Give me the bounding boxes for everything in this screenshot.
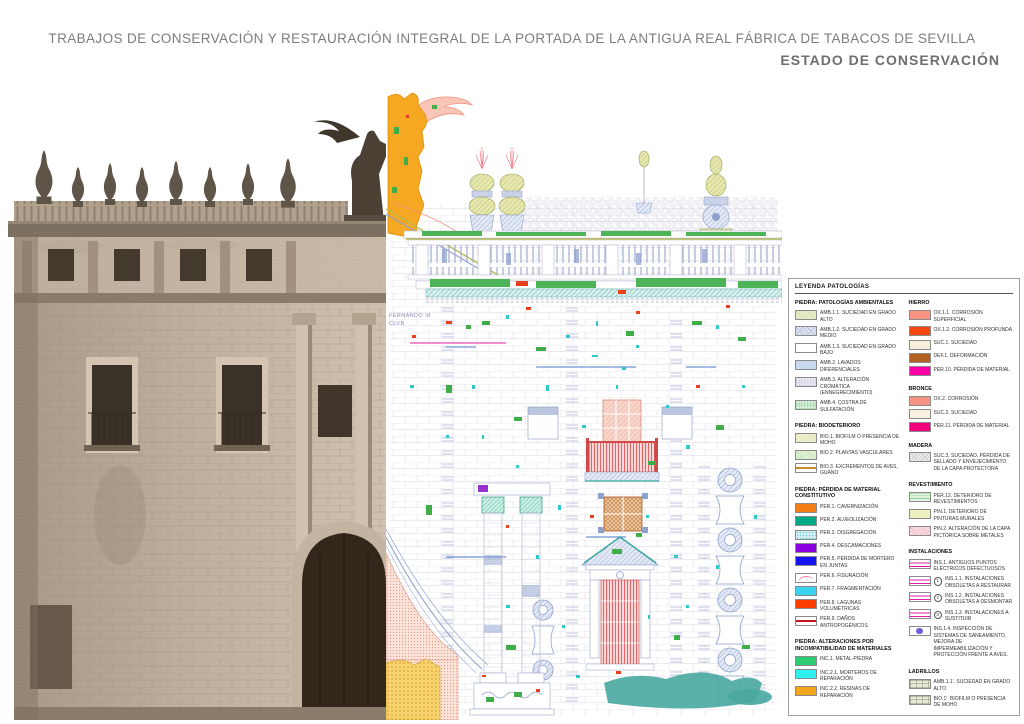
legend-item: AMB.1.1. SUCIEDAD EN GRADO ALTO bbox=[795, 310, 900, 324]
legend-item-label: BIO.3. EXCREMENTOS DE AVES, GUANO bbox=[820, 463, 900, 477]
legend-section: PIEDRA: ALTERACIONES POR INCOMPATIBILIDA… bbox=[795, 636, 900, 702]
legend-item: AMB.1.1'. SUCIEDAD EN GRADO ALTO bbox=[909, 679, 1014, 693]
legend-item-label: INS.1. ANTIGUOS PUNTOS ELÉCTRICOS DEFECT… bbox=[934, 559, 1014, 573]
legend-section-title: PIEDRA: ALTERACIONES POR INCOMPATIBILIDA… bbox=[795, 639, 900, 653]
legend-item: PER.4. DESCAMACIONES bbox=[795, 543, 900, 553]
legend-item: AMB.3. ALTERACIÓN CROMÁTICA (ENNEGRECIMI… bbox=[795, 377, 900, 397]
legend-item: AMB.1.2. SUCIEDAD EN GRADO MEDIO bbox=[795, 326, 900, 340]
upper-cornice bbox=[404, 231, 782, 239]
legend-item: OX.1.2. CORROSIÓN PROFUNDA bbox=[909, 326, 1014, 336]
legend-section-title: BRONCE bbox=[909, 386, 1014, 393]
legend-item: PER.6. FISURACIÓN bbox=[795, 573, 900, 583]
legend-panel: LEYENDA PATOLOGÍAS PIEDRA: PATOLOGÍAS AM… bbox=[788, 278, 1020, 716]
legend-item: 3INS.1.3. INSTALACIONES A SUSTITUIR bbox=[909, 609, 1014, 623]
legend-item: OX.2. CORROSIÓN bbox=[909, 396, 1014, 406]
legend-swatch bbox=[795, 616, 817, 626]
small-window-left bbox=[528, 407, 558, 439]
legend-item-label: SUC.2. SUCIEDAD bbox=[934, 409, 977, 416]
photo-balcony-window-right bbox=[214, 357, 270, 453]
photo-attic bbox=[14, 237, 386, 293]
legend-item: BIO.3. EXCREMENTOS DE AVES, GUANO bbox=[795, 463, 900, 477]
legend-item-label: PER.10. PÉRDIDA DE MATERIAL bbox=[934, 366, 1010, 373]
drawing-balustrade bbox=[408, 240, 782, 279]
legend-item-label: PER.5. PÉRDIDA DE MORTERO EN JUNTAS bbox=[820, 556, 900, 570]
legend-swatch bbox=[795, 343, 817, 353]
frieze-inscription-line1: FERNANDO VI bbox=[389, 313, 431, 319]
legend-item-label: BIO.1. BIOFILM O PRESENCIA DE MOHO bbox=[820, 433, 900, 447]
legend-item-label: INC.1. METAL-PIEDRA bbox=[820, 656, 872, 663]
legend-item: SUC.3. SUCIEDAD, PÉRDIDA DE SELLADO Y EN… bbox=[909, 452, 1014, 472]
legend-item: BIO.1. BIOFILM O PRESENCIA DE MOHO bbox=[795, 433, 900, 447]
legend-section: INSTALACIONESINS.1. ANTIGUOS PUNTOS ELÉC… bbox=[909, 546, 1014, 662]
pathology-drawing-art: FERNANDO VI CLVB bbox=[386, 85, 782, 720]
legend-item: PER.5. PÉRDIDA DE MORTERO EN JUNTAS bbox=[795, 556, 900, 570]
legend-item: PER.11. PÉRDIDA DE MATERIAL bbox=[909, 422, 1014, 432]
legend-item: PER.9. DAÑOS ANTROPOGÉNICOS bbox=[795, 616, 900, 630]
legend-swatch bbox=[909, 509, 931, 519]
legend-swatch bbox=[909, 576, 931, 586]
legend-swatch bbox=[909, 609, 931, 619]
legend-swatch bbox=[795, 326, 817, 336]
legend-item: PER.3. DISGREGACIÓN bbox=[795, 530, 900, 540]
legend-item: SUC.1. SUCIEDAD bbox=[909, 340, 1014, 350]
legend-item-label: PER.2. ALVEOLIZACIÓN bbox=[820, 516, 876, 523]
legend-swatch bbox=[795, 450, 817, 460]
page-subtitle: ESTADO DE CONSERVACIÓN bbox=[780, 52, 1000, 68]
damp-zone bbox=[728, 689, 772, 705]
legend-item: PER.7. FRAGMENTACIÓN bbox=[795, 586, 900, 596]
legend-section-title: PIEDRA: PÉRDIDA DE MATERIAL CONSTITUTIVO bbox=[795, 487, 900, 501]
legend-swatch bbox=[909, 695, 931, 705]
legend-section: BRONCEOX.2. CORROSIÓNSUC.2. SUCIEDADPER.… bbox=[909, 383, 1014, 435]
legend-item-label: PIN.1. DETERIORO DE PINTURAS MURALES bbox=[934, 509, 1014, 523]
legend-item-label: DEF.1. DEFORMACIÓN bbox=[934, 353, 988, 360]
legend-swatch bbox=[795, 543, 817, 553]
legend-section: MADERASUC.3. SUCIEDAD, PÉRDIDA DE SELLAD… bbox=[909, 440, 1014, 476]
legend-swatch bbox=[795, 433, 817, 443]
legend-section: PIEDRA: PATOLOGÍAS AMBIENTALESAMB.1.1. S… bbox=[795, 297, 900, 416]
legend-item-label: PER.7. FRAGMENTACIÓN bbox=[820, 586, 881, 593]
legend-swatch bbox=[909, 626, 931, 636]
legend-swatch bbox=[909, 592, 931, 602]
legend-item-badge: 3 bbox=[934, 611, 943, 620]
legend-item-label: BIO.2. PLANTAS VASCULARES bbox=[820, 450, 893, 457]
legend-column: HIERROOX.1.1. CORROSIÓN SUPERFICIALOX.1.… bbox=[909, 297, 1014, 716]
legend-section-title: REVESTIMIENTO bbox=[909, 482, 1014, 489]
legend-item-label: PER.3. DISGREGACIÓN bbox=[820, 530, 876, 537]
main-cornice bbox=[416, 278, 782, 303]
legend-item-label: BIO.1'. BIOFILM O PRESENCIA DE MOHO bbox=[934, 695, 1014, 709]
legend-item-badge: 1 bbox=[934, 577, 943, 586]
legend-item: 1INS.1.1. INSTALACIONES OBSOLETAS A REST… bbox=[909, 576, 1014, 590]
legend-item: PER.2. ALVEOLIZACIÓN bbox=[795, 516, 900, 526]
pedimented-window bbox=[582, 537, 658, 670]
legend-swatch bbox=[795, 516, 817, 526]
legend-column: PIEDRA: PATOLOGÍAS AMBIENTALESAMB.1.1. S… bbox=[795, 297, 900, 716]
legend-item-label: AMB.4. COSTRA DE SULFATACIÓN bbox=[820, 400, 900, 414]
legend-swatch bbox=[795, 669, 817, 679]
small-window-right bbox=[662, 407, 692, 439]
frieze-inscription-line2: CLVB bbox=[389, 321, 405, 327]
legend-item: 2INS.1.2. INSTALACIONES OBSOLETAS A DESM… bbox=[909, 592, 1014, 606]
legend-swatch bbox=[795, 656, 817, 666]
legend-item-label: AMB.1.1. SUCIEDAD EN GRADO ALTO bbox=[820, 310, 900, 324]
legend-item-label: PER.8. LAGUNAS VOLUMÉTRICAS bbox=[820, 599, 900, 613]
page: TRABAJOS DE CONSERVACIÓN Y RESTAURACIÓN … bbox=[0, 0, 1024, 724]
legend-item-label: INC.2.1. MORTEROS DE REPARACIÓN bbox=[820, 669, 900, 683]
facade-photo-art bbox=[0, 85, 386, 720]
legend-swatch bbox=[795, 686, 817, 696]
legend-item-label: SUC.1. SUCIEDAD bbox=[934, 340, 977, 347]
legend-item-label: AMB.1.1'. SUCIEDAD EN GRADO ALTO bbox=[934, 679, 1014, 693]
legend-swatch bbox=[909, 396, 931, 406]
legend-section-title: INSTALACIONES bbox=[909, 549, 1014, 556]
legend-section: PIEDRA: PÉRDIDA DE MATERIAL CONSTITUTIVO… bbox=[795, 484, 900, 633]
legend-section: LADRILLOSAMB.1.1'. SUCIEDAD EN GRADO ALT… bbox=[909, 666, 1014, 712]
legend-item-label: AMB.1.3. SUCIEDAD EN GRADO BAJO bbox=[820, 343, 900, 357]
legend-swatch bbox=[795, 310, 817, 320]
legend-item-label: PIN.2. ALTERACIÓN DE LA CAPA PICTÓRICA S… bbox=[934, 526, 1014, 540]
legend-item-label: PER.4. DESCAMACIONES bbox=[820, 543, 881, 550]
legend-item: INS.1.4. INSPECCIÓN DE SISTEMAS DE SANEA… bbox=[909, 626, 1014, 659]
legend-item: DEF.1. DEFORMACIÓN bbox=[909, 353, 1014, 363]
legend-item-label: INC.2.2. RESINAS DE REPARACIÓN bbox=[820, 686, 900, 700]
legend-item-label: PER.12. DETERIORO DE REVESTIMIENTOS bbox=[934, 492, 1014, 506]
legend-item: AMB.2. LAVADOS DIFERENCIALES bbox=[795, 360, 900, 374]
legend-item-label: AMB.3. ALTERACIÓN CROMÁTICA (ENNEGRECIMI… bbox=[820, 377, 900, 397]
legend-item-label: OX.1.2. CORROSIÓN PROFUNDA bbox=[934, 326, 1013, 333]
legend-item: PER.10. PÉRDIDA DE MATERIAL bbox=[909, 366, 1014, 376]
legend-item-badge: 2 bbox=[934, 594, 943, 603]
legend-swatch bbox=[909, 422, 931, 432]
legend-item-label: INS.1.1. INSTALACIONES OBSOLETAS A RESTA… bbox=[945, 576, 1013, 590]
legend-swatch bbox=[795, 599, 817, 609]
legend-item: PER.12. DETERIORO DE REVESTIMIENTOS bbox=[909, 492, 1014, 506]
legend-swatch bbox=[909, 492, 931, 502]
legend-swatch bbox=[909, 326, 931, 336]
legend-swatch bbox=[909, 452, 931, 462]
legend-item-label: OX.1.1. CORROSIÓN SUPERFICIAL bbox=[934, 310, 1014, 324]
legend-swatch bbox=[795, 573, 817, 583]
legend-swatch bbox=[909, 310, 931, 320]
legend-section-title: MADERA bbox=[909, 443, 1014, 450]
legend-swatch bbox=[795, 556, 817, 566]
legend-item-label: SUC.3. SUCIEDAD, PÉRDIDA DE SELLADO Y EN… bbox=[934, 452, 1014, 472]
legend-section: PIEDRA: BIODETERIOROBIO.1. BIOFILM O PRE… bbox=[795, 420, 900, 479]
legend-swatch bbox=[795, 586, 817, 596]
legend-item-label: PER.9. DAÑOS ANTROPOGÉNICOS bbox=[820, 616, 900, 630]
legend-item: INC.1. METAL-PIEDRA bbox=[795, 656, 900, 666]
legend-item: OX.1.1. CORROSIÓN SUPERFICIAL bbox=[909, 310, 1014, 324]
legend-item-label: AMB.1.2. SUCIEDAD EN GRADO MEDIO bbox=[820, 326, 900, 340]
legend-columns: PIEDRA: PATOLOGÍAS AMBIENTALESAMB.1.1. S… bbox=[795, 297, 1013, 716]
legend-swatch bbox=[795, 400, 817, 410]
legend-item: AMB.1.3. SUCIEDAD EN GRADO BAJO bbox=[795, 343, 900, 357]
legend-item: SUC.2. SUCIEDAD bbox=[909, 409, 1014, 419]
legend-title: LEYENDA PATOLOGÍAS bbox=[795, 284, 1013, 294]
legend-swatch bbox=[909, 559, 931, 569]
legend-swatch bbox=[909, 353, 931, 363]
legend-item: PER.8. LAGUNAS VOLUMÉTRICAS bbox=[795, 599, 900, 613]
legend-section-title: HIERRO bbox=[909, 300, 1014, 307]
legend-swatch bbox=[909, 526, 931, 536]
legend-swatch bbox=[909, 679, 931, 689]
facade-photo bbox=[0, 85, 386, 720]
legend-item-label: INS.1.3. INSTALACIONES A SUSTITUIR bbox=[945, 609, 1013, 623]
legend-swatch bbox=[909, 366, 931, 376]
yellow-zone bbox=[386, 659, 440, 720]
legend-section-title: PIEDRA: PATOLOGÍAS AMBIENTALES bbox=[795, 300, 900, 307]
legend-item-label: AMB.2. LAVADOS DIFERENCIALES bbox=[820, 360, 900, 374]
legend-item-label: OX.2. CORROSIÓN bbox=[934, 396, 979, 403]
legend-section: HIERROOX.1.1. CORROSIÓN SUPERFICIALOX.1.… bbox=[909, 297, 1014, 379]
legend-swatch bbox=[795, 503, 817, 513]
legend-item: PIN.1. DETERIORO DE PINTURAS MURALES bbox=[909, 509, 1014, 523]
legend-swatch bbox=[795, 463, 817, 473]
legend-item: BIO.1'. BIOFILM O PRESENCIA DE MOHO bbox=[909, 695, 1014, 709]
legend-item: BIO.2. PLANTAS VASCULARES bbox=[795, 450, 900, 460]
legend-swatch bbox=[795, 377, 817, 387]
legend-item-label: PER.11. PÉRDIDA DE MATERIAL bbox=[934, 422, 1010, 429]
legend-item: INC.2.2. RESINAS DE REPARACIÓN bbox=[795, 686, 900, 700]
legend-item: AMB.4. COSTRA DE SULFATACIÓN bbox=[795, 400, 900, 414]
inspection-dot-symbol bbox=[916, 628, 923, 635]
quoin-band bbox=[670, 315, 682, 705]
photo-balcony-window-left bbox=[84, 357, 140, 453]
legend-item-label: PER.6. FISURACIÓN bbox=[820, 573, 868, 580]
page-title: TRABAJOS DE CONSERVACIÓN Y RESTAURACIÓN … bbox=[20, 31, 1004, 46]
legend-item-label: INS.1.4. INSPECCIÓN DE SISTEMAS DE SANEA… bbox=[934, 626, 1014, 659]
legend-section-title: LADRILLOS bbox=[909, 669, 1014, 676]
legend-swatch bbox=[909, 409, 931, 419]
legend-swatch bbox=[795, 360, 817, 370]
legend-item-label: INS.1.2. INSTALACIONES OBSOLETAS A DESMO… bbox=[945, 592, 1013, 606]
legend-section-title: PIEDRA: BIODETERIORO bbox=[795, 423, 900, 430]
legend-swatch bbox=[909, 340, 931, 350]
legend-item: INS.1. ANTIGUOS PUNTOS ELÉCTRICOS DEFECT… bbox=[909, 559, 1014, 573]
crack-line-symbol bbox=[798, 575, 814, 582]
legend-swatch bbox=[795, 530, 817, 540]
legend-item: INC.2.1. MORTEROS DE REPARACIÓN bbox=[795, 669, 900, 683]
legend-item: PER.1. CAVERNIZACIÓN bbox=[795, 503, 900, 513]
pathology-drawing: FERNANDO VI CLVB bbox=[386, 85, 782, 720]
legend-section: REVESTIMIENTOPER.12. DETERIORO DE REVEST… bbox=[909, 479, 1014, 542]
legend-item: PIN.2. ALTERACIÓN DE LA CAPA PICTÓRICA S… bbox=[909, 526, 1014, 540]
legend-item-label: PER.1. CAVERNIZACIÓN bbox=[820, 503, 878, 510]
